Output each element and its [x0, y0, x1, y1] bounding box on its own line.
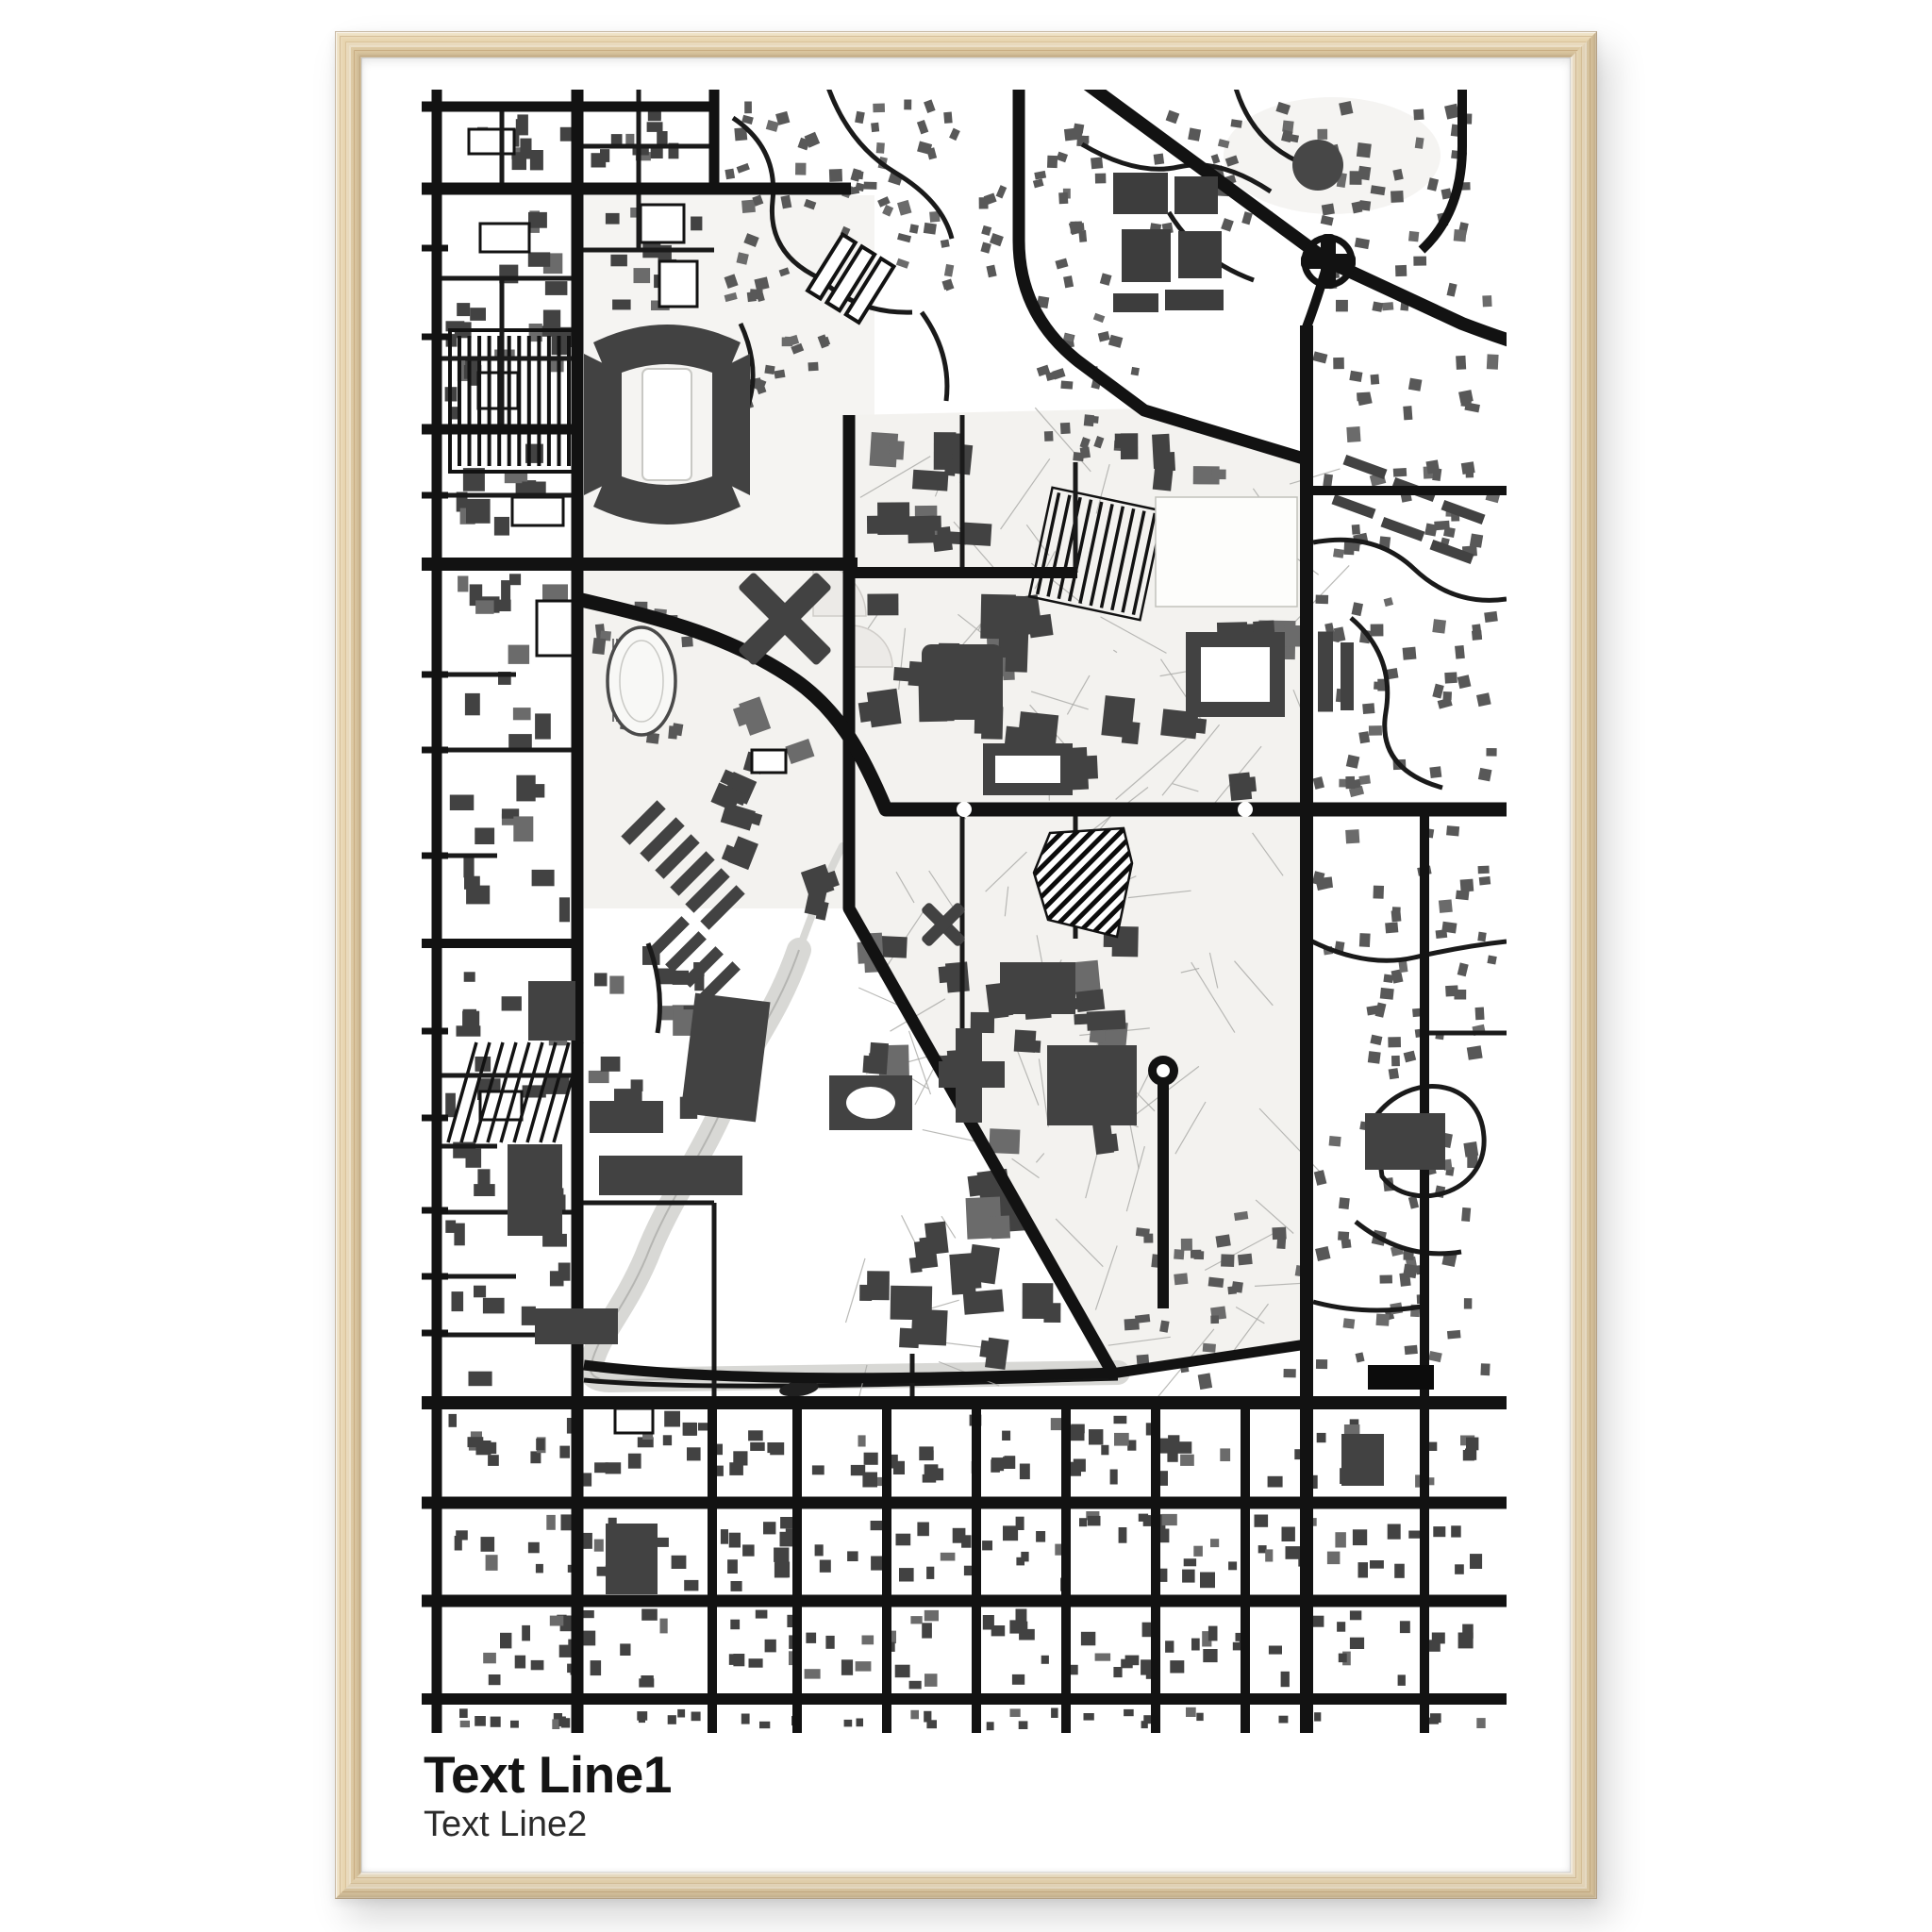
frame-bottom-rail: [335, 1873, 1597, 1899]
poster-paper: Text Line1 Text Line2: [361, 58, 1571, 1873]
poster-title-block: Text Line1 Text Line2: [424, 1748, 672, 1846]
frame-right-stile: [1571, 31, 1597, 1899]
product-photo: Text Line1 Text Line2: [0, 0, 1932, 1932]
frame-left-stile: [335, 31, 361, 1899]
map-svg: [422, 90, 1507, 1733]
poster-frame: Text Line1 Text Line2: [335, 31, 1597, 1899]
poster-title-line2: Text Line2: [424, 1805, 672, 1846]
poster-title-line1: Text Line1: [424, 1748, 672, 1801]
city-map: [422, 90, 1507, 1733]
frame-top-rail: [335, 31, 1597, 58]
